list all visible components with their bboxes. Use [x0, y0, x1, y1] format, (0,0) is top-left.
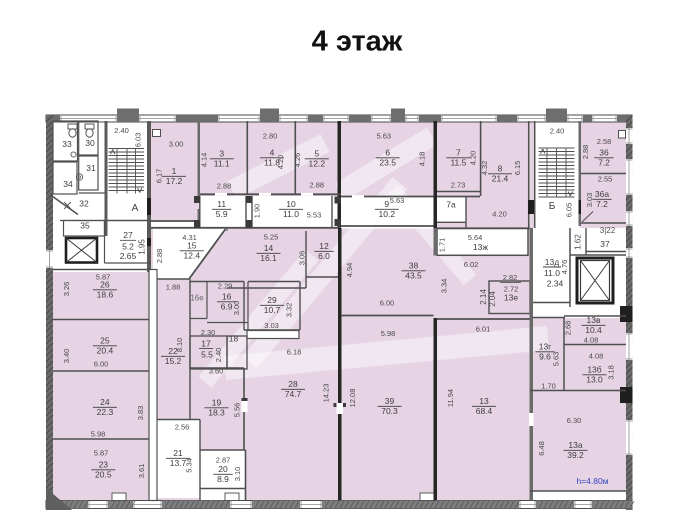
svg-text:5.63: 5.63	[376, 132, 391, 141]
svg-text:13ж: 13ж	[473, 242, 488, 252]
svg-text:27: 27	[123, 230, 133, 240]
svg-text:6.9: 6.9	[221, 302, 233, 312]
svg-text:7а: 7а	[446, 200, 456, 210]
svg-text:5.98: 5.98	[91, 430, 106, 439]
svg-text:6.01: 6.01	[476, 325, 491, 334]
svg-text:1.90: 1.90	[253, 204, 262, 219]
svg-text:3.10: 3.10	[233, 467, 242, 482]
svg-text:36: 36	[599, 148, 609, 158]
svg-text:2.88: 2.88	[217, 182, 232, 191]
svg-text:6: 6	[385, 148, 390, 158]
svg-text:1: 1	[172, 166, 177, 176]
svg-text:2.65: 2.65	[120, 251, 137, 261]
svg-text:4.20: 4.20	[492, 210, 507, 219]
svg-text:6.00: 6.00	[94, 360, 109, 369]
svg-text:22.3: 22.3	[97, 407, 114, 417]
svg-text:6.15: 6.15	[513, 161, 522, 176]
svg-text:4.08: 4.08	[589, 352, 604, 361]
svg-text:6.30: 6.30	[567, 416, 582, 425]
svg-text:10.4: 10.4	[585, 325, 602, 335]
svg-text:26: 26	[100, 280, 110, 290]
svg-text:4.08: 4.08	[584, 336, 599, 345]
svg-text:4.18: 4.18	[418, 152, 427, 167]
svg-text:3.34: 3.34	[439, 279, 448, 294]
svg-text:1.71: 1.71	[437, 238, 446, 253]
svg-text:14: 14	[264, 243, 274, 253]
svg-text:2.58: 2.58	[597, 137, 612, 146]
svg-text:9.6: 9.6	[539, 352, 551, 362]
svg-text:3.18: 3.18	[607, 365, 616, 380]
svg-text:5.25: 5.25	[264, 233, 279, 242]
svg-text:13б: 13б	[587, 365, 601, 375]
svg-text:5.5: 5.5	[201, 350, 213, 360]
svg-text:39: 39	[385, 396, 395, 406]
svg-text:5.63: 5.63	[390, 196, 405, 205]
svg-text:39.2: 39.2	[567, 450, 584, 460]
svg-text:3.00: 3.00	[232, 301, 241, 316]
svg-text:23.5: 23.5	[379, 158, 396, 168]
svg-text:13.0: 13.0	[586, 375, 603, 385]
svg-text:2.30: 2.30	[201, 328, 216, 337]
svg-text:10.2: 10.2	[379, 209, 396, 219]
svg-text:3: 3	[219, 149, 224, 159]
svg-text:2.56: 2.56	[175, 423, 190, 432]
svg-text:13а: 13а	[568, 440, 582, 450]
svg-text:7.2: 7.2	[598, 158, 610, 168]
svg-text:4: 4	[270, 148, 275, 158]
svg-text:3.03: 3.03	[264, 321, 279, 330]
svg-text:3.26: 3.26	[62, 282, 71, 297]
svg-text:74.7: 74.7	[285, 389, 302, 399]
svg-text:4.26: 4.26	[293, 153, 302, 168]
svg-text:10.7: 10.7	[264, 305, 281, 315]
svg-text:5.56: 5.56	[233, 403, 242, 418]
svg-text:20: 20	[218, 464, 228, 474]
svg-text:10: 10	[286, 199, 296, 209]
svg-text:12.4: 12.4	[184, 251, 201, 261]
svg-text:А: А	[132, 203, 139, 214]
svg-text:32: 32	[79, 199, 89, 209]
svg-text:16е: 16е	[190, 294, 204, 303]
svg-text:15: 15	[187, 241, 197, 251]
svg-text:37: 37	[600, 239, 610, 249]
svg-text:3.00: 3.00	[169, 140, 184, 149]
svg-text:1.62: 1.62	[574, 234, 583, 250]
svg-text:3.06: 3.06	[298, 251, 307, 266]
svg-text:5.98: 5.98	[381, 329, 396, 338]
svg-text:2.68: 2.68	[564, 321, 573, 336]
svg-text:11.1: 11.1	[214, 159, 230, 169]
svg-text:13в: 13в	[587, 315, 601, 325]
svg-text:4.20: 4.20	[469, 151, 478, 166]
svg-text:23: 23	[99, 460, 109, 470]
svg-text:13: 13	[479, 396, 489, 406]
svg-text:3.40: 3.40	[62, 349, 71, 364]
svg-text:11.94: 11.94	[446, 389, 455, 407]
svg-text:18.6: 18.6	[97, 290, 114, 300]
svg-text:2.14: 2.14	[479, 289, 488, 305]
svg-text:5.64: 5.64	[468, 233, 483, 242]
svg-text:38: 38	[409, 261, 419, 271]
svg-text:4.94: 4.94	[345, 263, 354, 278]
svg-text:13д: 13д	[545, 257, 559, 267]
svg-text:29: 29	[267, 295, 277, 305]
svg-text:21.4: 21.4	[492, 174, 509, 184]
svg-text:28: 28	[288, 379, 298, 389]
svg-text:6.02: 6.02	[464, 260, 479, 269]
svg-text:2.88: 2.88	[581, 145, 590, 160]
svg-text:4.32: 4.32	[480, 161, 489, 176]
svg-text:35: 35	[80, 221, 90, 231]
svg-text:5.63: 5.63	[552, 352, 561, 367]
svg-text:5.87: 5.87	[94, 449, 109, 458]
svg-text:6.0: 6.0	[318, 251, 330, 261]
svg-text:h=4.80м: h=4.80м	[576, 476, 608, 486]
svg-text:2.34: 2.34	[547, 279, 564, 289]
svg-text:7.2: 7.2	[596, 199, 608, 209]
svg-text:5: 5	[314, 149, 319, 159]
svg-text:30: 30	[85, 138, 95, 148]
svg-text:3|22: 3|22	[600, 226, 616, 235]
svg-text:3.03: 3.03	[585, 193, 594, 208]
svg-text:43.5: 43.5	[405, 271, 422, 281]
svg-text:14.23: 14.23	[322, 384, 331, 403]
svg-text:2.80: 2.80	[263, 132, 278, 141]
svg-text:4.20: 4.20	[276, 155, 285, 170]
svg-text:16: 16	[222, 292, 232, 302]
svg-text:24: 24	[100, 397, 110, 407]
svg-text:31: 31	[86, 163, 96, 173]
svg-text:25: 25	[100, 336, 110, 346]
svg-text:8.9: 8.9	[217, 474, 229, 484]
svg-text:15.2: 15.2	[165, 356, 182, 366]
svg-text:1,95: 1,95	[138, 239, 147, 255]
svg-text:2.29: 2.29	[218, 282, 233, 291]
svg-text:9: 9	[384, 199, 389, 209]
svg-text:17.2: 17.2	[166, 176, 183, 186]
svg-text:1.88: 1.88	[166, 283, 181, 292]
svg-text:70.3: 70.3	[381, 406, 398, 416]
svg-text:2.40: 2.40	[550, 127, 565, 136]
svg-text:5.53: 5.53	[307, 211, 322, 220]
svg-text:2.04: 2.04	[488, 291, 497, 307]
svg-text:2.88: 2.88	[309, 181, 324, 190]
svg-text:36а: 36а	[595, 189, 609, 199]
svg-text:17: 17	[201, 339, 211, 349]
svg-text:68.4: 68.4	[476, 406, 493, 416]
svg-text:7: 7	[456, 148, 461, 158]
svg-text:34: 34	[63, 179, 73, 189]
svg-text:3.83: 3.83	[136, 406, 145, 421]
svg-text:1.70: 1.70	[541, 382, 556, 391]
svg-text:12: 12	[319, 241, 329, 251]
svg-text:20.5: 20.5	[95, 470, 112, 480]
svg-text:20.4: 20.4	[97, 346, 114, 356]
svg-text:18.3: 18.3	[208, 408, 225, 418]
svg-text:21: 21	[173, 448, 183, 458]
svg-text:19: 19	[212, 398, 222, 408]
svg-text:6.03: 6.03	[134, 133, 143, 148]
svg-text:11.0: 11.0	[283, 209, 299, 219]
svg-text:12.2: 12.2	[309, 159, 326, 169]
svg-text:4 этаж: 4 этаж	[312, 26, 403, 58]
svg-text:13е: 13е	[504, 293, 518, 303]
svg-text:2.82: 2.82	[503, 273, 518, 282]
svg-text:6.00: 6.00	[380, 299, 395, 308]
svg-text:11.5: 11.5	[450, 158, 466, 168]
svg-text:18: 18	[229, 334, 239, 344]
svg-text:2.40: 2.40	[114, 126, 129, 135]
svg-text:33: 33	[62, 139, 72, 149]
svg-text:6.18: 6.18	[287, 348, 302, 357]
svg-text:5.9: 5.9	[216, 209, 228, 219]
svg-text:2.40: 2.40	[214, 348, 223, 363]
svg-text:16.1: 16.1	[260, 253, 277, 263]
svg-text:22: 22	[168, 346, 178, 356]
svg-text:Б: Б	[549, 201, 556, 212]
svg-text:12.08: 12.08	[348, 389, 357, 408]
svg-text:2.55: 2.55	[598, 175, 613, 184]
svg-text:11.0: 11.0	[544, 268, 560, 278]
svg-text:5.2: 5.2	[122, 242, 134, 252]
svg-text:6.48: 6.48	[537, 441, 546, 456]
svg-text:6.05: 6.05	[565, 203, 574, 218]
svg-text:3.60: 3.60	[209, 367, 224, 376]
svg-text:4.14: 4.14	[200, 153, 209, 168]
svg-text:13г: 13г	[539, 342, 552, 352]
svg-text:4.76: 4.76	[560, 260, 569, 275]
svg-text:11: 11	[217, 199, 226, 209]
svg-text:2.73: 2.73	[451, 181, 466, 190]
svg-text:8: 8	[498, 164, 503, 174]
svg-text:5.34: 5.34	[185, 458, 194, 473]
svg-text:2.88: 2.88	[155, 249, 164, 264]
svg-text:3.61: 3.61	[137, 464, 146, 479]
svg-text:3.32: 3.32	[285, 303, 294, 318]
